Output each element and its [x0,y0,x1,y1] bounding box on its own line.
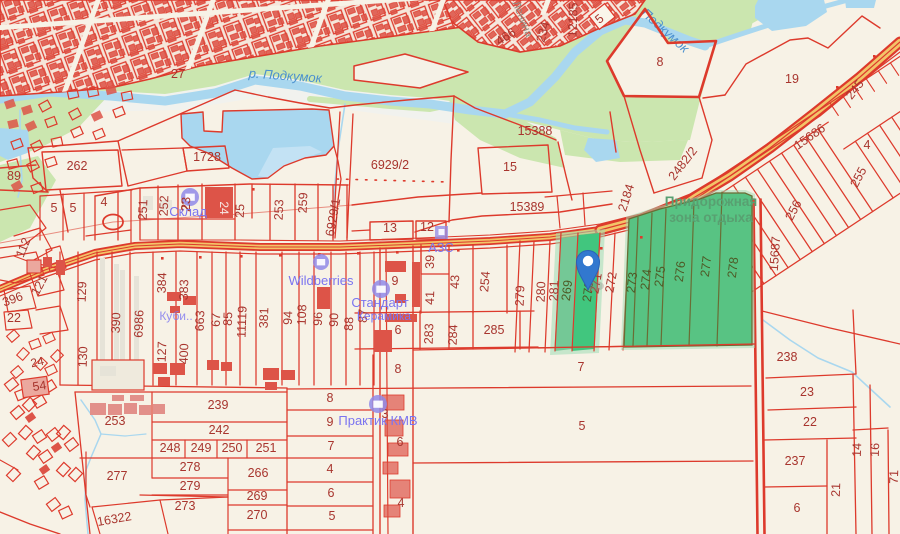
svg-text:9: 9 [392,274,399,288]
svg-text:6929/2: 6929/2 [371,158,409,172]
svg-text:275: 275 [652,265,668,287]
svg-text:39: 39 [423,255,437,269]
svg-text:383: 383 [177,279,192,300]
svg-text:54: 54 [32,378,48,394]
svg-text:12185: 12185 [565,2,580,37]
svg-text:8: 8 [657,55,664,69]
svg-text:242: 242 [209,423,230,437]
svg-text:6: 6 [397,435,404,449]
svg-text:Стандарт: Стандарт [351,295,408,310]
svg-text:27: 27 [171,67,185,81]
svg-text:41: 41 [423,291,437,305]
svg-text:254: 254 [477,271,493,293]
svg-text:276: 276 [672,260,688,282]
svg-text:253: 253 [105,414,126,428]
svg-text:90: 90 [327,313,341,327]
svg-text:16: 16 [868,443,882,457]
svg-text:390: 390 [109,312,124,333]
svg-text:11119: 11119 [234,306,249,338]
svg-text:384: 384 [155,272,170,293]
svg-text:1728: 1728 [193,150,221,164]
svg-text:6: 6 [328,486,335,500]
svg-text:13: 13 [383,221,397,235]
svg-text:Керамика: Керамика [357,309,411,323]
svg-text:278: 278 [180,460,201,474]
svg-text:6: 6 [794,501,801,515]
svg-text:зона отдыха: зона отдыха [669,210,753,225]
svg-text:248: 248 [160,441,181,455]
svg-text:269: 269 [247,489,268,503]
svg-text:6986: 6986 [132,310,147,338]
svg-text:94: 94 [281,311,295,325]
svg-text:251: 251 [136,199,151,220]
svg-text:14: 14 [850,443,864,457]
svg-text:21: 21 [829,483,843,497]
svg-text:19: 19 [785,72,799,86]
svg-text:22: 22 [803,415,817,429]
svg-text:43: 43 [448,275,462,289]
svg-text:663: 663 [193,310,208,331]
svg-text:130: 130 [76,346,91,367]
svg-text:Придорожная: Придорожная [665,194,758,209]
svg-text:7: 7 [578,360,585,374]
svg-text:127: 127 [155,341,170,362]
svg-text:259: 259 [296,192,311,213]
svg-text:9: 9 [327,415,334,429]
svg-text:15687: 15687 [767,236,783,272]
svg-text:381: 381 [257,307,272,328]
svg-text:285: 285 [484,323,505,337]
svg-text:22: 22 [7,311,21,325]
svg-text:23: 23 [800,385,814,399]
svg-text:108: 108 [295,304,310,325]
svg-text:15: 15 [503,160,517,174]
svg-text:24: 24 [217,201,231,215]
svg-text:96: 96 [311,312,325,326]
svg-text:85: 85 [221,312,235,326]
svg-text:400: 400 [177,343,192,364]
svg-text:4: 4 [101,195,108,209]
svg-text:Куби..: Куби.. [159,309,192,323]
svg-text:129: 129 [75,281,90,302]
svg-text:5: 5 [579,419,586,433]
svg-text:273: 273 [175,499,196,513]
svg-text:278: 278 [725,256,741,278]
svg-text:262: 262 [67,159,88,173]
svg-text:239: 239 [208,398,229,412]
svg-text:270: 270 [247,508,268,522]
svg-text:12: 12 [420,220,434,234]
svg-text:277: 277 [107,469,128,483]
svg-text:89: 89 [7,169,21,183]
svg-text:279: 279 [513,285,528,306]
svg-text:4: 4 [864,138,871,152]
svg-text:7: 7 [328,439,335,453]
svg-text:Wildberries: Wildberries [288,273,354,288]
svg-text:253: 253 [272,199,287,220]
svg-text:4: 4 [398,496,405,510]
svg-text:4: 4 [327,462,334,476]
svg-text:8: 8 [395,362,402,376]
svg-text:АЗС: АЗС [428,240,454,255]
svg-text:15388: 15388 [518,124,553,138]
svg-text:6: 6 [395,323,402,337]
svg-text:Практик КМВ: Практик КМВ [338,413,417,428]
svg-text:283: 283 [422,323,437,344]
svg-text:15389: 15389 [510,200,545,214]
svg-text:251: 251 [256,441,277,455]
svg-text:88: 88 [342,317,356,331]
svg-text:250: 250 [222,441,243,455]
svg-text:25: 25 [233,204,247,218]
svg-text:8: 8 [327,391,334,405]
svg-text:5: 5 [51,201,58,215]
svg-text:249: 249 [191,441,212,455]
svg-text:284: 284 [446,324,461,345]
svg-text:Склад: Склад [169,204,207,219]
svg-text:277: 277 [698,255,714,277]
svg-text:279: 279 [180,479,201,493]
svg-text:281: 281 [547,280,562,301]
svg-text:238: 238 [777,350,798,364]
svg-text:266: 266 [248,466,269,480]
svg-text:71: 71 [887,470,900,484]
svg-text:5: 5 [329,509,336,523]
svg-text:237: 237 [785,454,806,468]
svg-text:5: 5 [70,201,77,215]
